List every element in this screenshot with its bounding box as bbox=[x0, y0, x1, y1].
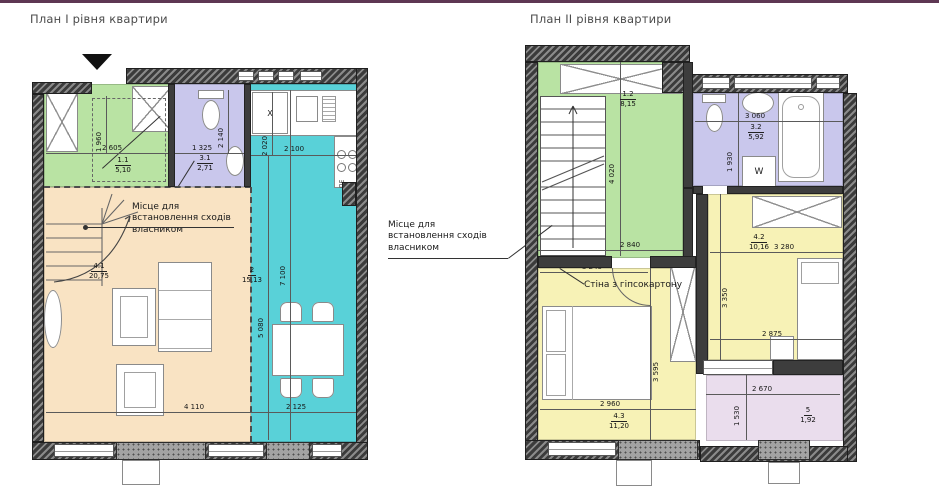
plan1-stairs-annotation: Місце для встановлення сходів власником bbox=[132, 202, 240, 236]
bedroom2-wardrobe bbox=[752, 196, 842, 228]
dining-table bbox=[272, 324, 344, 376]
plan1-top-window bbox=[278, 71, 294, 81]
plan1-window-sill bbox=[266, 442, 310, 460]
double-bed-pillow bbox=[546, 354, 566, 396]
dimension-line bbox=[706, 394, 840, 395]
plan1-stair-opening-dashed-line bbox=[44, 186, 251, 188]
floor-plan-sheet: План I рівня квартири План II рівня квар… bbox=[0, 0, 939, 500]
plan2-balcony-door-swing bbox=[768, 462, 800, 484]
plan2-partition-hall-bath bbox=[683, 62, 693, 188]
plan2-annotation-leader bbox=[388, 258, 508, 259]
plan2-bottom-window bbox=[548, 442, 616, 456]
plan2-wall-right bbox=[843, 93, 857, 462]
plan2-top-window bbox=[734, 77, 812, 89]
room-area: 20,75 bbox=[89, 272, 109, 280]
plan1-top-window bbox=[258, 71, 274, 81]
dimension-line bbox=[290, 90, 291, 440]
header-divider-line bbox=[0, 0, 939, 3]
dining-chair bbox=[312, 302, 334, 322]
dim-bed42-bottom-width: 2 875 bbox=[762, 331, 782, 338]
dimension-line bbox=[540, 409, 696, 410]
armchair-2-cushion bbox=[124, 372, 156, 408]
dimension-line bbox=[106, 96, 107, 153]
dining-chair bbox=[280, 378, 302, 398]
room-area: 15,13 bbox=[242, 276, 262, 284]
room-label-living: 4.1 20,75 bbox=[82, 262, 116, 281]
dim-balcony-height: 1 530 bbox=[734, 382, 743, 426]
room-label-bedroom3: 4.3 11,20 bbox=[602, 412, 636, 431]
plan1-partition-bath-kitchen bbox=[244, 84, 251, 187]
plan2-partition-bedrooms bbox=[696, 194, 708, 374]
plan1-annotation-leader bbox=[86, 227, 234, 228]
dim-bath-width: 1 325 bbox=[192, 145, 212, 152]
plan2-partition-hall-bottom bbox=[650, 256, 696, 268]
dim-kitchen-width: 2 100 bbox=[284, 146, 304, 153]
plan1-kitchen-living-dashed-boundary bbox=[250, 187, 252, 442]
dim-hall2-height: 4 020 bbox=[609, 138, 618, 184]
room-label-hall2: 1.2 8,15 bbox=[612, 90, 644, 109]
room-area: 8,15 bbox=[620, 100, 636, 108]
room-area: 10,16 bbox=[749, 243, 769, 251]
dimension-line bbox=[650, 268, 651, 440]
washer-marker: W bbox=[755, 167, 764, 177]
dim-bath2-height: 1 930 bbox=[727, 126, 736, 172]
dimension-line bbox=[46, 412, 358, 413]
plan2-title: План II рівня квартири bbox=[530, 12, 671, 26]
dim-kitchen-col: 2 020 bbox=[262, 110, 271, 156]
dim-kitchen-full-height: 7 100 bbox=[280, 240, 289, 286]
room-number: 2 bbox=[248, 266, 256, 276]
dimension-line bbox=[695, 121, 843, 122]
plan2-balcony-window bbox=[703, 360, 773, 375]
toilet-tank bbox=[198, 90, 224, 99]
kitchen-sink-drainer bbox=[322, 96, 336, 122]
dim-bed42-height: 3 350 bbox=[722, 262, 731, 308]
room-label-bath1: 3.1 2,71 bbox=[190, 154, 220, 173]
plan2-partition-bath-bottom bbox=[693, 186, 703, 194]
plan2-stairs-annotation: Місце для встановлення сходів власником bbox=[388, 220, 492, 254]
plan1-bottom-window bbox=[208, 444, 264, 457]
room-label-kitchen: 2 15,13 bbox=[236, 266, 268, 285]
bedroom3-wardrobe bbox=[670, 262, 696, 362]
entrance-arrow-icon bbox=[82, 54, 112, 70]
room-label-balcony: 5 1,92 bbox=[794, 406, 822, 425]
room-area: 2,71 bbox=[197, 164, 213, 172]
dimension-line bbox=[746, 375, 747, 440]
plan2-top-window bbox=[702, 77, 730, 89]
dimension-line bbox=[710, 252, 843, 253]
plan1-wall-pier bbox=[342, 182, 356, 206]
stove-burner bbox=[337, 163, 346, 172]
plan2-top-window bbox=[816, 77, 840, 89]
plan2-wall-left bbox=[525, 62, 538, 458]
plan1-wall-right bbox=[356, 68, 368, 460]
dim-hall2-width: 2 840 bbox=[620, 242, 640, 249]
plan2-balcony-wall bbox=[773, 360, 843, 375]
plan1-window-sill bbox=[116, 442, 206, 460]
dim-bed43-height: 3 595 bbox=[653, 336, 662, 382]
dim-hall-width: 2 605 bbox=[102, 145, 122, 152]
toilet-bowl bbox=[706, 104, 723, 132]
room-number: 4.3 bbox=[611, 412, 626, 422]
plan2-balcony-sill bbox=[758, 440, 810, 460]
dim-kitchen-height: 5 080 bbox=[258, 292, 267, 338]
room-number: 1.2 bbox=[620, 90, 635, 100]
room-label-hall1: 1.1 5,10 bbox=[108, 156, 138, 175]
room-number: 5 bbox=[804, 406, 812, 416]
console-table bbox=[44, 290, 62, 348]
room-number: 4.2 bbox=[751, 233, 766, 243]
plan1-annotation-dot bbox=[83, 225, 88, 230]
double-bed-blanket-line bbox=[572, 306, 573, 400]
plan1-wall-top-left bbox=[32, 82, 92, 94]
kitchen-sink-basin bbox=[296, 96, 318, 122]
single-bed-pillow bbox=[801, 262, 839, 284]
dining-chair bbox=[280, 302, 302, 322]
plan1-bottom-window bbox=[54, 444, 114, 457]
plan1-top-window bbox=[300, 71, 322, 81]
dimension-line bbox=[538, 250, 683, 251]
dimension-line bbox=[250, 155, 358, 156]
plan1-wall-left bbox=[32, 94, 44, 442]
plan1-partition-hall-bath bbox=[168, 84, 175, 187]
dimension-line bbox=[268, 156, 269, 440]
room-number: 4.1 bbox=[91, 262, 106, 272]
room-number: 3.1 bbox=[197, 154, 212, 164]
plan2-stairs bbox=[540, 96, 606, 256]
room-number: 3.2 bbox=[748, 123, 763, 133]
room-area: 5,92 bbox=[748, 133, 764, 141]
dim-bath-depth: 2 140 bbox=[218, 102, 227, 148]
room-label-bath2: 3.2 5,92 bbox=[740, 123, 772, 142]
plan2-window-sill bbox=[618, 440, 698, 460]
dining-chair bbox=[312, 378, 334, 398]
dimension-line bbox=[720, 194, 721, 360]
toilet-tank bbox=[702, 94, 726, 103]
dimension-line bbox=[272, 92, 273, 155]
room-label-bedroom2: 4.2 10,16 bbox=[742, 233, 776, 252]
dimension-line bbox=[540, 272, 648, 273]
dim-bed43-width: 2 960 bbox=[600, 401, 620, 408]
room-area: 1,92 bbox=[800, 416, 816, 424]
plan2-partition-hall-right bbox=[683, 188, 693, 258]
room-area: 11,20 bbox=[609, 422, 629, 430]
sofa bbox=[158, 262, 212, 352]
plan2-balcony-room bbox=[706, 375, 843, 441]
room-number: 1.1 bbox=[115, 156, 130, 166]
dimension-line bbox=[710, 339, 843, 340]
dim-hall-depth: 1 960 bbox=[96, 106, 105, 152]
plan1-title: План I рівня квартири bbox=[30, 12, 168, 26]
dim-balcony-width: 2 670 bbox=[752, 386, 772, 393]
plan2-partition-hall-bottom bbox=[538, 256, 612, 268]
plan1-bottom-window bbox=[312, 444, 342, 457]
plan1-top-window bbox=[238, 71, 254, 81]
dim-living-width: 4 110 bbox=[184, 404, 204, 411]
plan2-wall-top bbox=[525, 45, 690, 62]
bathtub-drain bbox=[798, 104, 804, 110]
dimension-line bbox=[738, 93, 739, 186]
plan2-door-swing-below bbox=[616, 460, 652, 486]
room-area: 5,10 bbox=[115, 166, 131, 174]
dim-kitchen-bottom-width: 2 125 bbox=[286, 404, 306, 411]
dim-bath2-width: 3 060 bbox=[745, 113, 765, 120]
washing-machine: W bbox=[742, 156, 776, 188]
dim-bed42-width: 3 280 bbox=[774, 244, 794, 251]
washbasin bbox=[742, 92, 774, 114]
plan2-partition-bath-bottom bbox=[727, 186, 843, 194]
drywall-annotation: Стіна з гіпсокартону bbox=[584, 280, 694, 291]
plan1-balcony-door-swing bbox=[122, 460, 160, 485]
armchair-cushion bbox=[120, 296, 148, 338]
plan1-shaft-crossed-box bbox=[46, 92, 78, 152]
double-bed-pillow bbox=[546, 310, 566, 352]
dimension-line bbox=[228, 90, 229, 153]
